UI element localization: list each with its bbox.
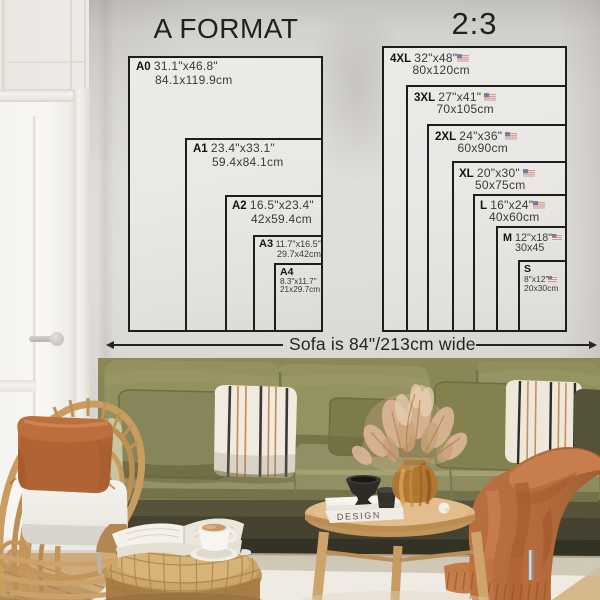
svg-text:DESIGN: DESIGN (337, 510, 382, 522)
